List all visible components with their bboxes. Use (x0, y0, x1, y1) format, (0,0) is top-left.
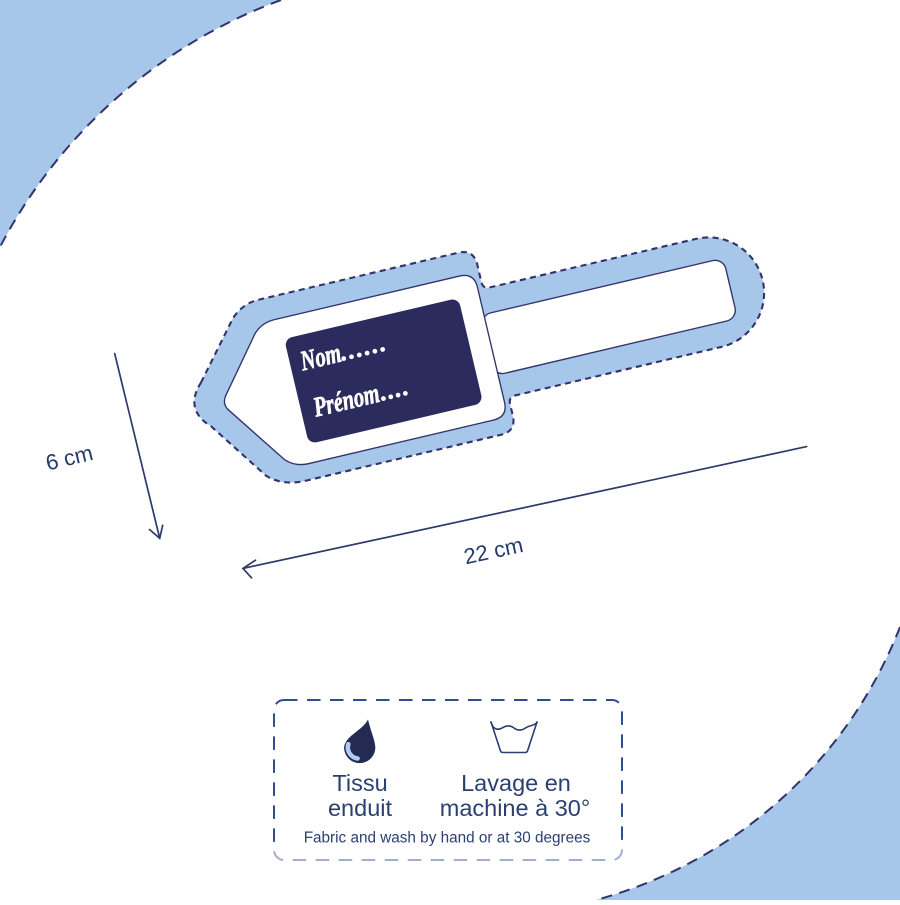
svg-text:Fabric and wash by hand or at: Fabric and wash by hand or at 30 degrees (304, 830, 591, 847)
svg-text:enduit: enduit (328, 795, 392, 821)
svg-text:Lavage en: Lavage en (461, 770, 571, 796)
svg-text:Tissu: Tissu (332, 770, 387, 796)
svg-text:machine à 30°: machine à 30° (440, 795, 591, 821)
